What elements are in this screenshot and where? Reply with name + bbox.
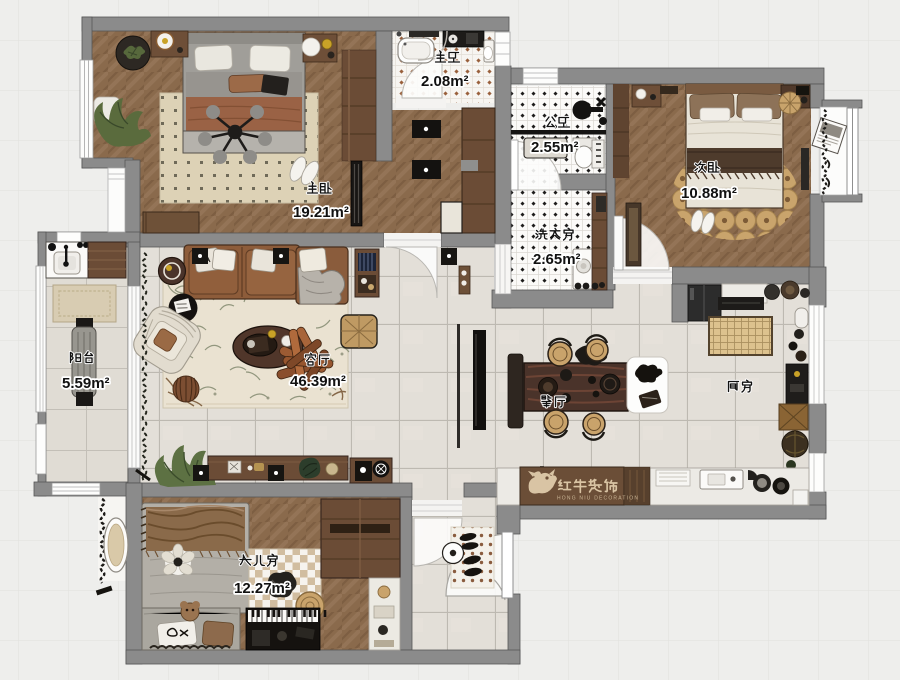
- svg-text:46.39m²: 46.39m²: [290, 373, 346, 390]
- svg-text:2.08m²: 2.08m²: [421, 73, 469, 90]
- svg-text:19.21m²: 19.21m²: [293, 204, 349, 221]
- svg-text:5.59m²: 5.59m²: [62, 375, 110, 392]
- svg-text:10.88m²: 10.88m²: [681, 185, 737, 202]
- svg-text:12.27m²: 12.27m²: [234, 580, 290, 597]
- svg-text:HONG NIU DECORATION: HONG NIU DECORATION: [557, 496, 639, 502]
- svg-text:2.55m²: 2.55m²: [531, 139, 579, 156]
- svg-text:2.65m²: 2.65m²: [533, 251, 581, 268]
